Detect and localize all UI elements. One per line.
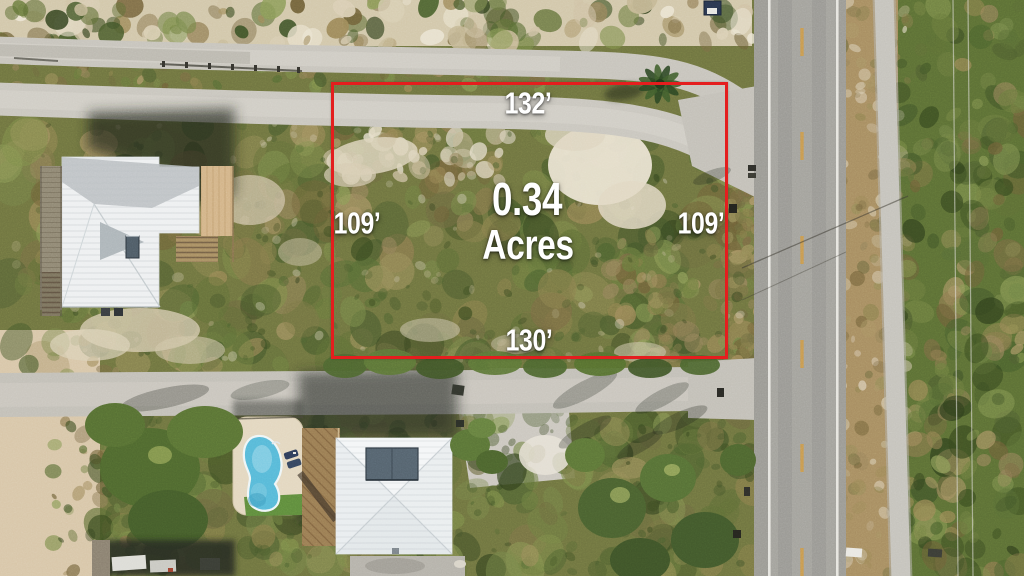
dimension-label-bottom: 130’ <box>506 325 553 356</box>
area-value: 0.34 <box>492 176 562 222</box>
dimension-label-top: 132’ <box>505 88 552 119</box>
dimension-label-left: 109’ <box>334 208 381 239</box>
aerial-photo: 132’ 109’ 109’ 130’ 0.34 Acres <box>0 0 1024 576</box>
area-unit: Acres <box>482 224 573 266</box>
dimension-label-right: 109’ <box>678 208 725 239</box>
